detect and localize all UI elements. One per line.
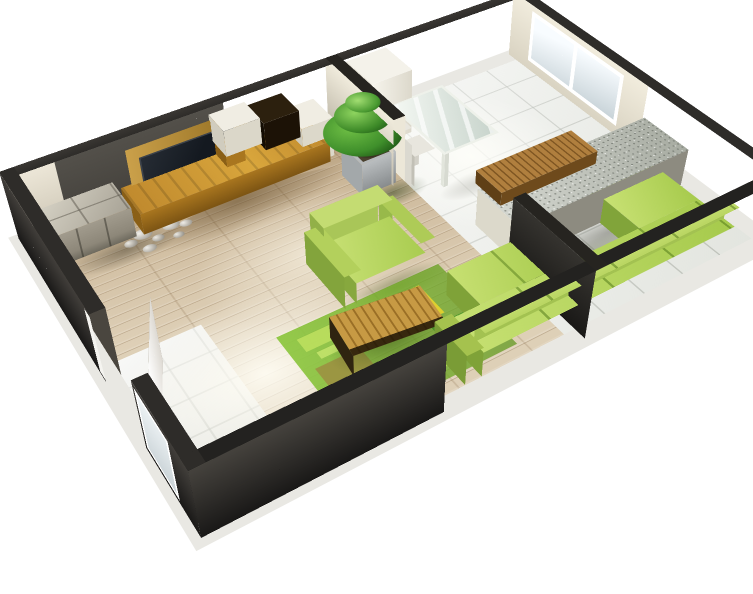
apartment-3d-scene: [19, 51, 753, 538]
kitchen-window-mullion: [569, 45, 578, 89]
apartment-render-viewport: [0, 0, 753, 594]
living-room-window-mullion: [656, 243, 672, 294]
